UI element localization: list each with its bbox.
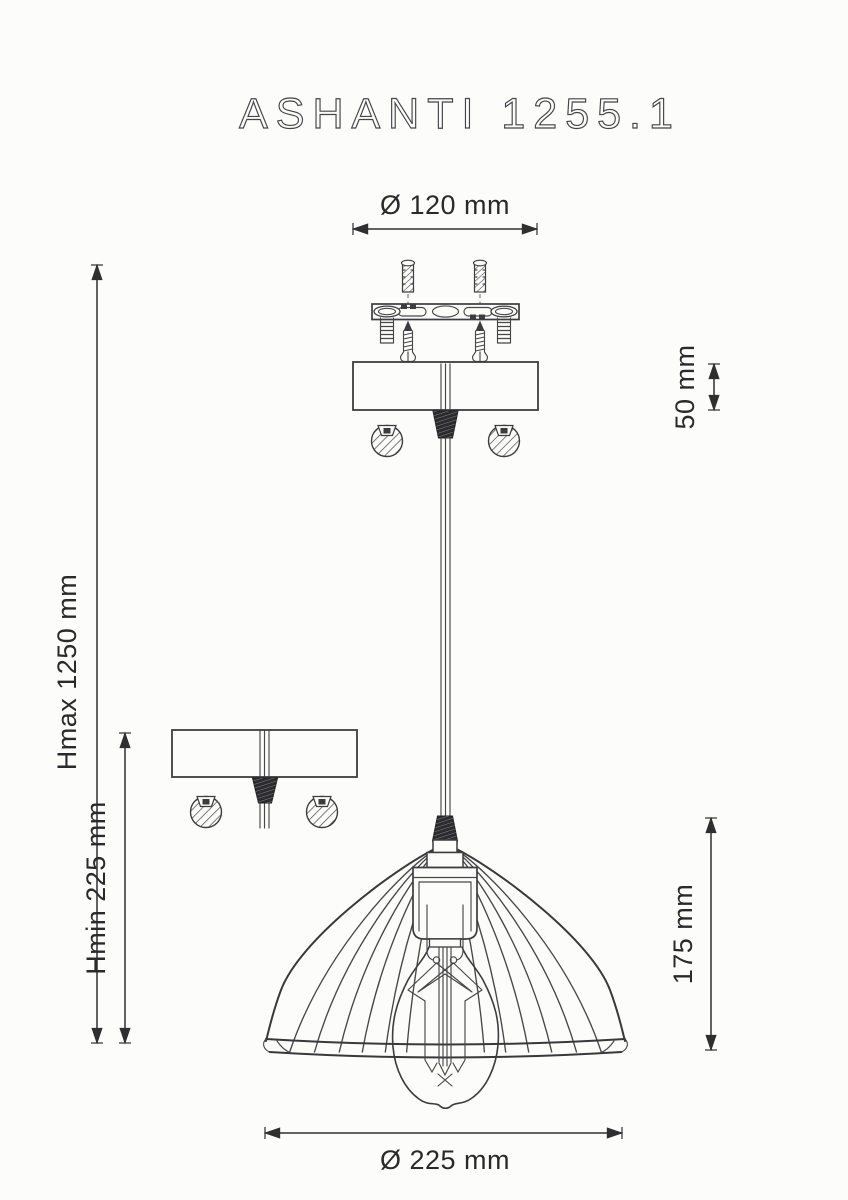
- technical-drawing-page: ASHANTI 1255.1 Ø 120 mm: [0, 0, 848, 1200]
- product-title: ASHANTI 1255.1: [239, 90, 681, 138]
- bolt-left: [374, 306, 400, 343]
- shade-diameter-label: Ø 225 mm: [380, 1145, 510, 1175]
- wall-plug-right: [474, 260, 487, 292]
- cable-grip-canopy: [433, 411, 458, 438]
- canopy-min-wire-tails: [260, 803, 269, 828]
- shade-rim: [264, 1039, 628, 1058]
- canopy-diameter-label: Ø 120 mm: [380, 190, 510, 220]
- cable-grip-shade: [433, 816, 458, 841]
- canopy-min-wires: [260, 731, 269, 777]
- dimension-shade-height: 175 mm: [668, 818, 717, 1050]
- screw-right: [473, 321, 488, 362]
- suspension-cable: [441, 438, 450, 818]
- pendant-lamp-technical-drawing: ASHANTI 1255.1 Ø 120 mm: [0, 0, 848, 1200]
- screw-left: [401, 321, 416, 362]
- fixing-nut-right: [489, 426, 520, 457]
- dimension-shade-diameter: Ø 225 mm: [265, 1127, 622, 1175]
- wall-plug-left: [402, 260, 415, 292]
- dimension-min-height: Hmin 225 mm: [81, 733, 131, 1043]
- cable-grip-canopy-min: [253, 778, 278, 803]
- dimension-canopy-diameter: Ø 120 mm: [353, 190, 537, 235]
- min-height-label: Hmin 225 mm: [81, 801, 111, 975]
- fixing-nut-left: [372, 426, 403, 457]
- shade-height-label: 175 mm: [668, 884, 698, 985]
- dimension-canopy-height: 50 mm: [670, 344, 720, 429]
- max-height-label: Hmax 1250 mm: [52, 574, 82, 771]
- bolt-right: [491, 306, 517, 343]
- mounting-hardware: [372, 260, 519, 361]
- canopy-height-label: 50 mm: [670, 344, 700, 429]
- fixing-nut-min-left: [191, 797, 222, 828]
- canopy-wires: [441, 364, 450, 410]
- canopy-min-view: [172, 730, 357, 828]
- fixing-nut-min-right: [307, 797, 338, 828]
